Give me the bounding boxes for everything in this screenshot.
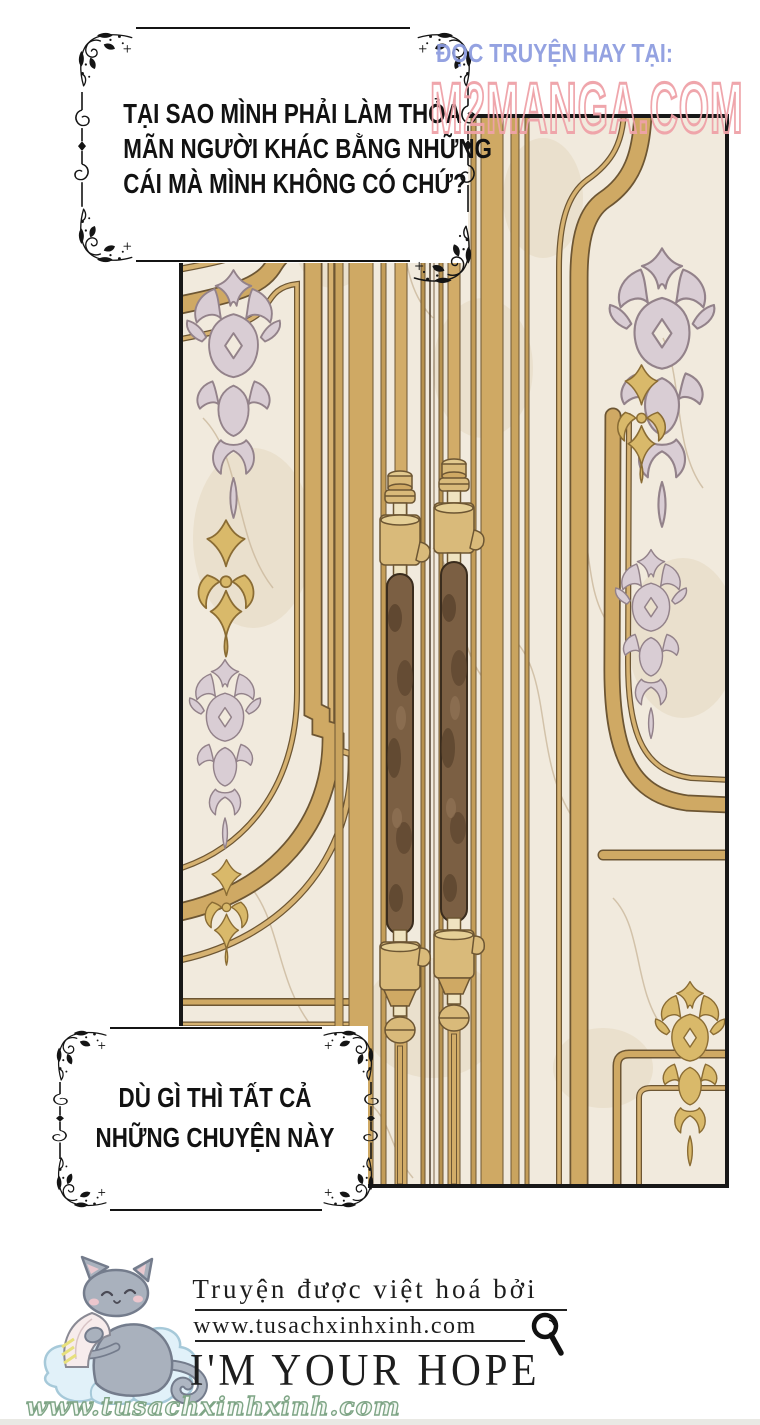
speech-text-bottom: DÙ GÌ THÌ TẤT CẢ NHỮNG CHUYỆN NÀY [62,1078,368,1158]
corner-flourish-icon [79,209,132,262]
divider-line [195,1309,567,1311]
speech-line: CÁI MÀ MÌNH KHÔNG CÓ CHỨ? [123,166,429,201]
speech-line: MÃN NGƯỜI KHÁC BẰNG NHỮNG [123,131,429,166]
speech-text-top: TẠI SAO MÌNH PHẢI LÀM THỎA MÃN NGƯỜI KHÁ… [85,96,468,201]
watermark-prefix: ĐỌC TRUYỆN HAY TẠI: [436,38,673,69]
divider-line [195,1340,525,1342]
door-artwork [183,118,725,1184]
credit-line: Truyện được việt hoá bởi [160,1274,570,1305]
speech-line: NHỮNG CHUYỆN NÀY [93,1118,338,1158]
speech-line: DÙ GÌ THÌ TẤT CẢ [93,1078,338,1118]
credit-tagline: I'M YOUR HOPE [172,1344,558,1396]
corner-flourish-icon [79,33,132,86]
corner-flourish-icon [57,1158,106,1207]
page-bottom-strip [0,1419,760,1425]
credit-url-script: www.tusachxinhxinh.com [26,1392,401,1421]
speech-line: TẠI SAO MÌNH PHẢI LÀM THỎA [123,96,429,131]
watermark-site: M2MANGA.COM [430,66,743,150]
comic-panel [179,114,729,1188]
credit-url: www.tusachxinhxinh.com [130,1313,540,1340]
corner-flourish-icon [57,1031,106,1080]
